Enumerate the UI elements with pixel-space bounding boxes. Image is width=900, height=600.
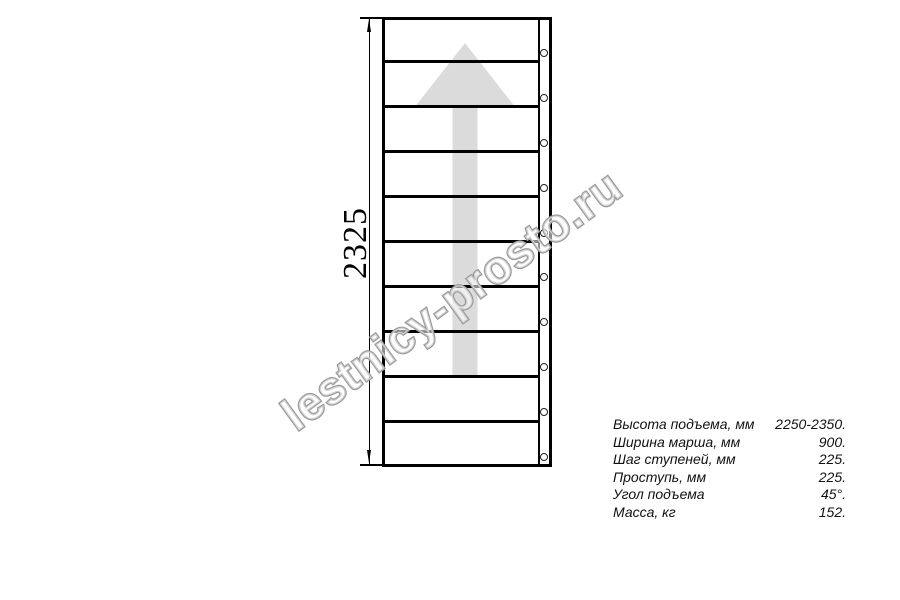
bolt-hole-marker bbox=[540, 318, 548, 326]
spec-label: Угол подъема bbox=[613, 486, 705, 504]
dimension-extension-line-bottom bbox=[360, 464, 385, 466]
spec-row: Проступь, мм 225. bbox=[613, 469, 846, 487]
spec-row: Угол подъема 45°. bbox=[613, 486, 846, 504]
bolt-hole-marker bbox=[540, 273, 548, 281]
spec-row: Шаг ступеней, мм 225. bbox=[613, 451, 846, 469]
stringer-line bbox=[538, 20, 540, 464]
stair-step-line bbox=[385, 285, 538, 288]
drawing-canvas: 2325 lestnicy-prosto.ru Высота подъема, … bbox=[0, 0, 900, 600]
spec-row: Ширина марша, мм 900. bbox=[613, 434, 846, 452]
spec-label: Масса, кг bbox=[613, 504, 676, 522]
bolt-hole-marker bbox=[540, 184, 548, 192]
spec-value: 900. bbox=[819, 434, 846, 452]
dimension-label: 2325 bbox=[337, 207, 375, 279]
dimension-extension-line-top bbox=[360, 17, 385, 19]
bolt-hole-marker bbox=[540, 139, 548, 147]
bolt-hole-marker bbox=[540, 49, 548, 57]
specs-table: Высота подъема, мм 2250-2350. Ширина мар… bbox=[613, 416, 846, 521]
spec-row: Масса, кг 152. bbox=[613, 504, 846, 522]
bolt-hole-marker bbox=[540, 453, 548, 461]
spec-label: Проступь, мм bbox=[613, 469, 706, 487]
stair-step-line bbox=[385, 150, 538, 153]
dimension-arrow-up-icon bbox=[367, 19, 371, 32]
stair-step-line bbox=[385, 105, 538, 108]
bolt-hole-marker bbox=[540, 363, 548, 371]
spec-value: 45°. bbox=[821, 486, 846, 504]
spec-row: Высота подъема, мм 2250-2350. bbox=[613, 416, 846, 434]
bolt-hole-marker bbox=[540, 229, 548, 237]
spec-value: 2250-2350. bbox=[775, 416, 846, 434]
spec-value: 152. bbox=[819, 504, 846, 522]
spec-label: Шаг ступеней, мм bbox=[613, 451, 736, 469]
bolt-hole-marker bbox=[540, 94, 548, 102]
stair-step-line bbox=[385, 330, 538, 333]
spec-label: Высота подъема, мм bbox=[613, 416, 755, 434]
stair-step-line bbox=[385, 60, 538, 63]
bolt-hole-marker bbox=[540, 408, 548, 416]
dimension-arrow-down-icon bbox=[367, 450, 371, 463]
stair-step-line bbox=[385, 420, 538, 423]
stair-step-line bbox=[385, 375, 538, 378]
spec-value: 225. bbox=[819, 451, 846, 469]
stair-step-line bbox=[385, 240, 538, 243]
stair-plan-drawing bbox=[382, 17, 552, 467]
spec-value: 225. bbox=[819, 469, 846, 487]
spec-label: Ширина марша, мм bbox=[613, 434, 740, 452]
stair-step-line bbox=[385, 195, 538, 198]
